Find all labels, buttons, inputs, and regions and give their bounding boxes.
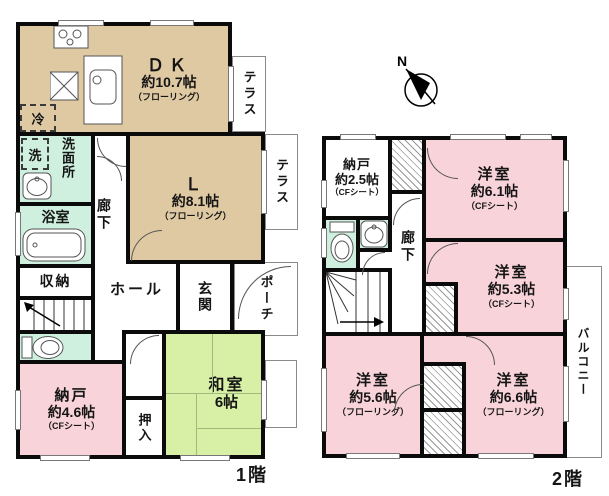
window-mark [40, 455, 90, 461]
balcony-label: バルコニー [575, 327, 592, 397]
toilet-floor2-icon [327, 221, 357, 267]
svg-text:N: N [397, 53, 407, 69]
room-oshiire: 押入 [122, 396, 166, 459]
balcony: バルコニー [565, 266, 602, 458]
window-mark [58, 20, 104, 26]
window-mark [321, 228, 327, 258]
kitchen-fixtures-icon [50, 26, 125, 126]
closet-hatched [420, 362, 466, 412]
bathroom-label: 浴室 [42, 210, 70, 226]
stairs-floor1-icon [20, 300, 91, 330]
exterior-step-box [265, 360, 297, 428]
storeroom-floor1-label: 納戸 約4.6帖 （CFシート） [43, 388, 100, 432]
bedroom-61-label: 洋室 約6.1帖 （CFシート） [466, 167, 523, 211]
window-mark [321, 368, 327, 432]
corridor-floor2-label: 廊下 [398, 230, 418, 264]
washbasin-floor2-icon [360, 220, 388, 248]
window-mark [321, 180, 327, 208]
compass-icon: N [393, 50, 445, 112]
floor2-caption: 2階 [552, 465, 584, 491]
storage-label: 収納 [40, 274, 72, 290]
room-washitsu: 和室 6帖 [162, 330, 265, 459]
room-entrance: 玄関 [176, 260, 234, 334]
tatami-line [196, 428, 261, 429]
window-mark [346, 453, 400, 459]
hall-label: ホール [110, 278, 164, 299]
door-arc [362, 252, 385, 275]
window-mark [563, 160, 569, 212]
tatami-line [166, 393, 261, 394]
room-storeroom-floor1: 納戸 約4.6帖 （CFシート） [16, 360, 127, 459]
terrace-right: テラス [265, 134, 298, 230]
washroom-label: 洗面所 [58, 137, 77, 179]
window-mark [15, 212, 21, 256]
window-mark [520, 134, 552, 140]
window-mark [563, 366, 569, 422]
refrigerator-box: 冷 [20, 104, 56, 132]
bathtub-icon [22, 228, 86, 262]
floor1-caption: 1階 [236, 461, 268, 487]
terrace-top-label: テラス [240, 70, 259, 118]
bedroom-53-label: 洋室 約5.3帖 （CFシート） [483, 265, 540, 309]
window-mark [261, 380, 267, 420]
storeroom-floor2-label: 納戸 約2.5帖 （CFシート） [330, 158, 384, 198]
terrace-top: テラス [232, 56, 266, 132]
room-living-label: Ｌ 約8.1帖 （フローリング） [159, 175, 231, 221]
bedroom-66-label: 洋室 約6.6帖 （フローリング） [477, 373, 549, 417]
window-mark [450, 134, 506, 140]
window-mark [228, 66, 234, 122]
room-storeroom-floor2: 納戸 約2.5帖 （CFシート） [322, 136, 392, 220]
oshiire-label: 押入 [135, 413, 154, 443]
window-mark [478, 453, 534, 459]
floor-plan-canvas: テラス テラス ポーチ ＤＫ 約10.7帖 （フローリング） 冷 Ｌ 約8.1帖 [0, 0, 609, 496]
door-arc [393, 198, 420, 225]
corridor-floor1-label: 廊下 [94, 198, 114, 232]
window-mark [150, 20, 194, 26]
stairs-floor2-icon [326, 272, 388, 332]
washing-machine-box: 洗 [21, 138, 49, 170]
window-mark [340, 134, 376, 140]
room-dk-label: ＤＫ 約10.7帖 （フローリング） [133, 56, 205, 102]
washitsu-label: 和室 6帖 [208, 377, 244, 412]
tatami-line [196, 393, 197, 455]
entrance-label: 玄関 [195, 281, 215, 313]
room-storage: 収納 [16, 264, 95, 300]
washbasin-icon [22, 172, 52, 200]
window-mark [15, 390, 21, 430]
closet-hatched [420, 408, 466, 458]
toilet-floor1-icon [21, 334, 67, 361]
closet-hatched [388, 136, 426, 194]
refrigerator-label: 冷 [31, 109, 44, 128]
washing-machine-label: 洗 [28, 145, 41, 164]
window-mark [563, 288, 569, 320]
window-mark [261, 150, 267, 214]
terrace-right-label: テラス [272, 158, 291, 206]
tatami-line [212, 334, 213, 394]
window-mark [180, 455, 230, 461]
closet-hatched [422, 282, 458, 336]
